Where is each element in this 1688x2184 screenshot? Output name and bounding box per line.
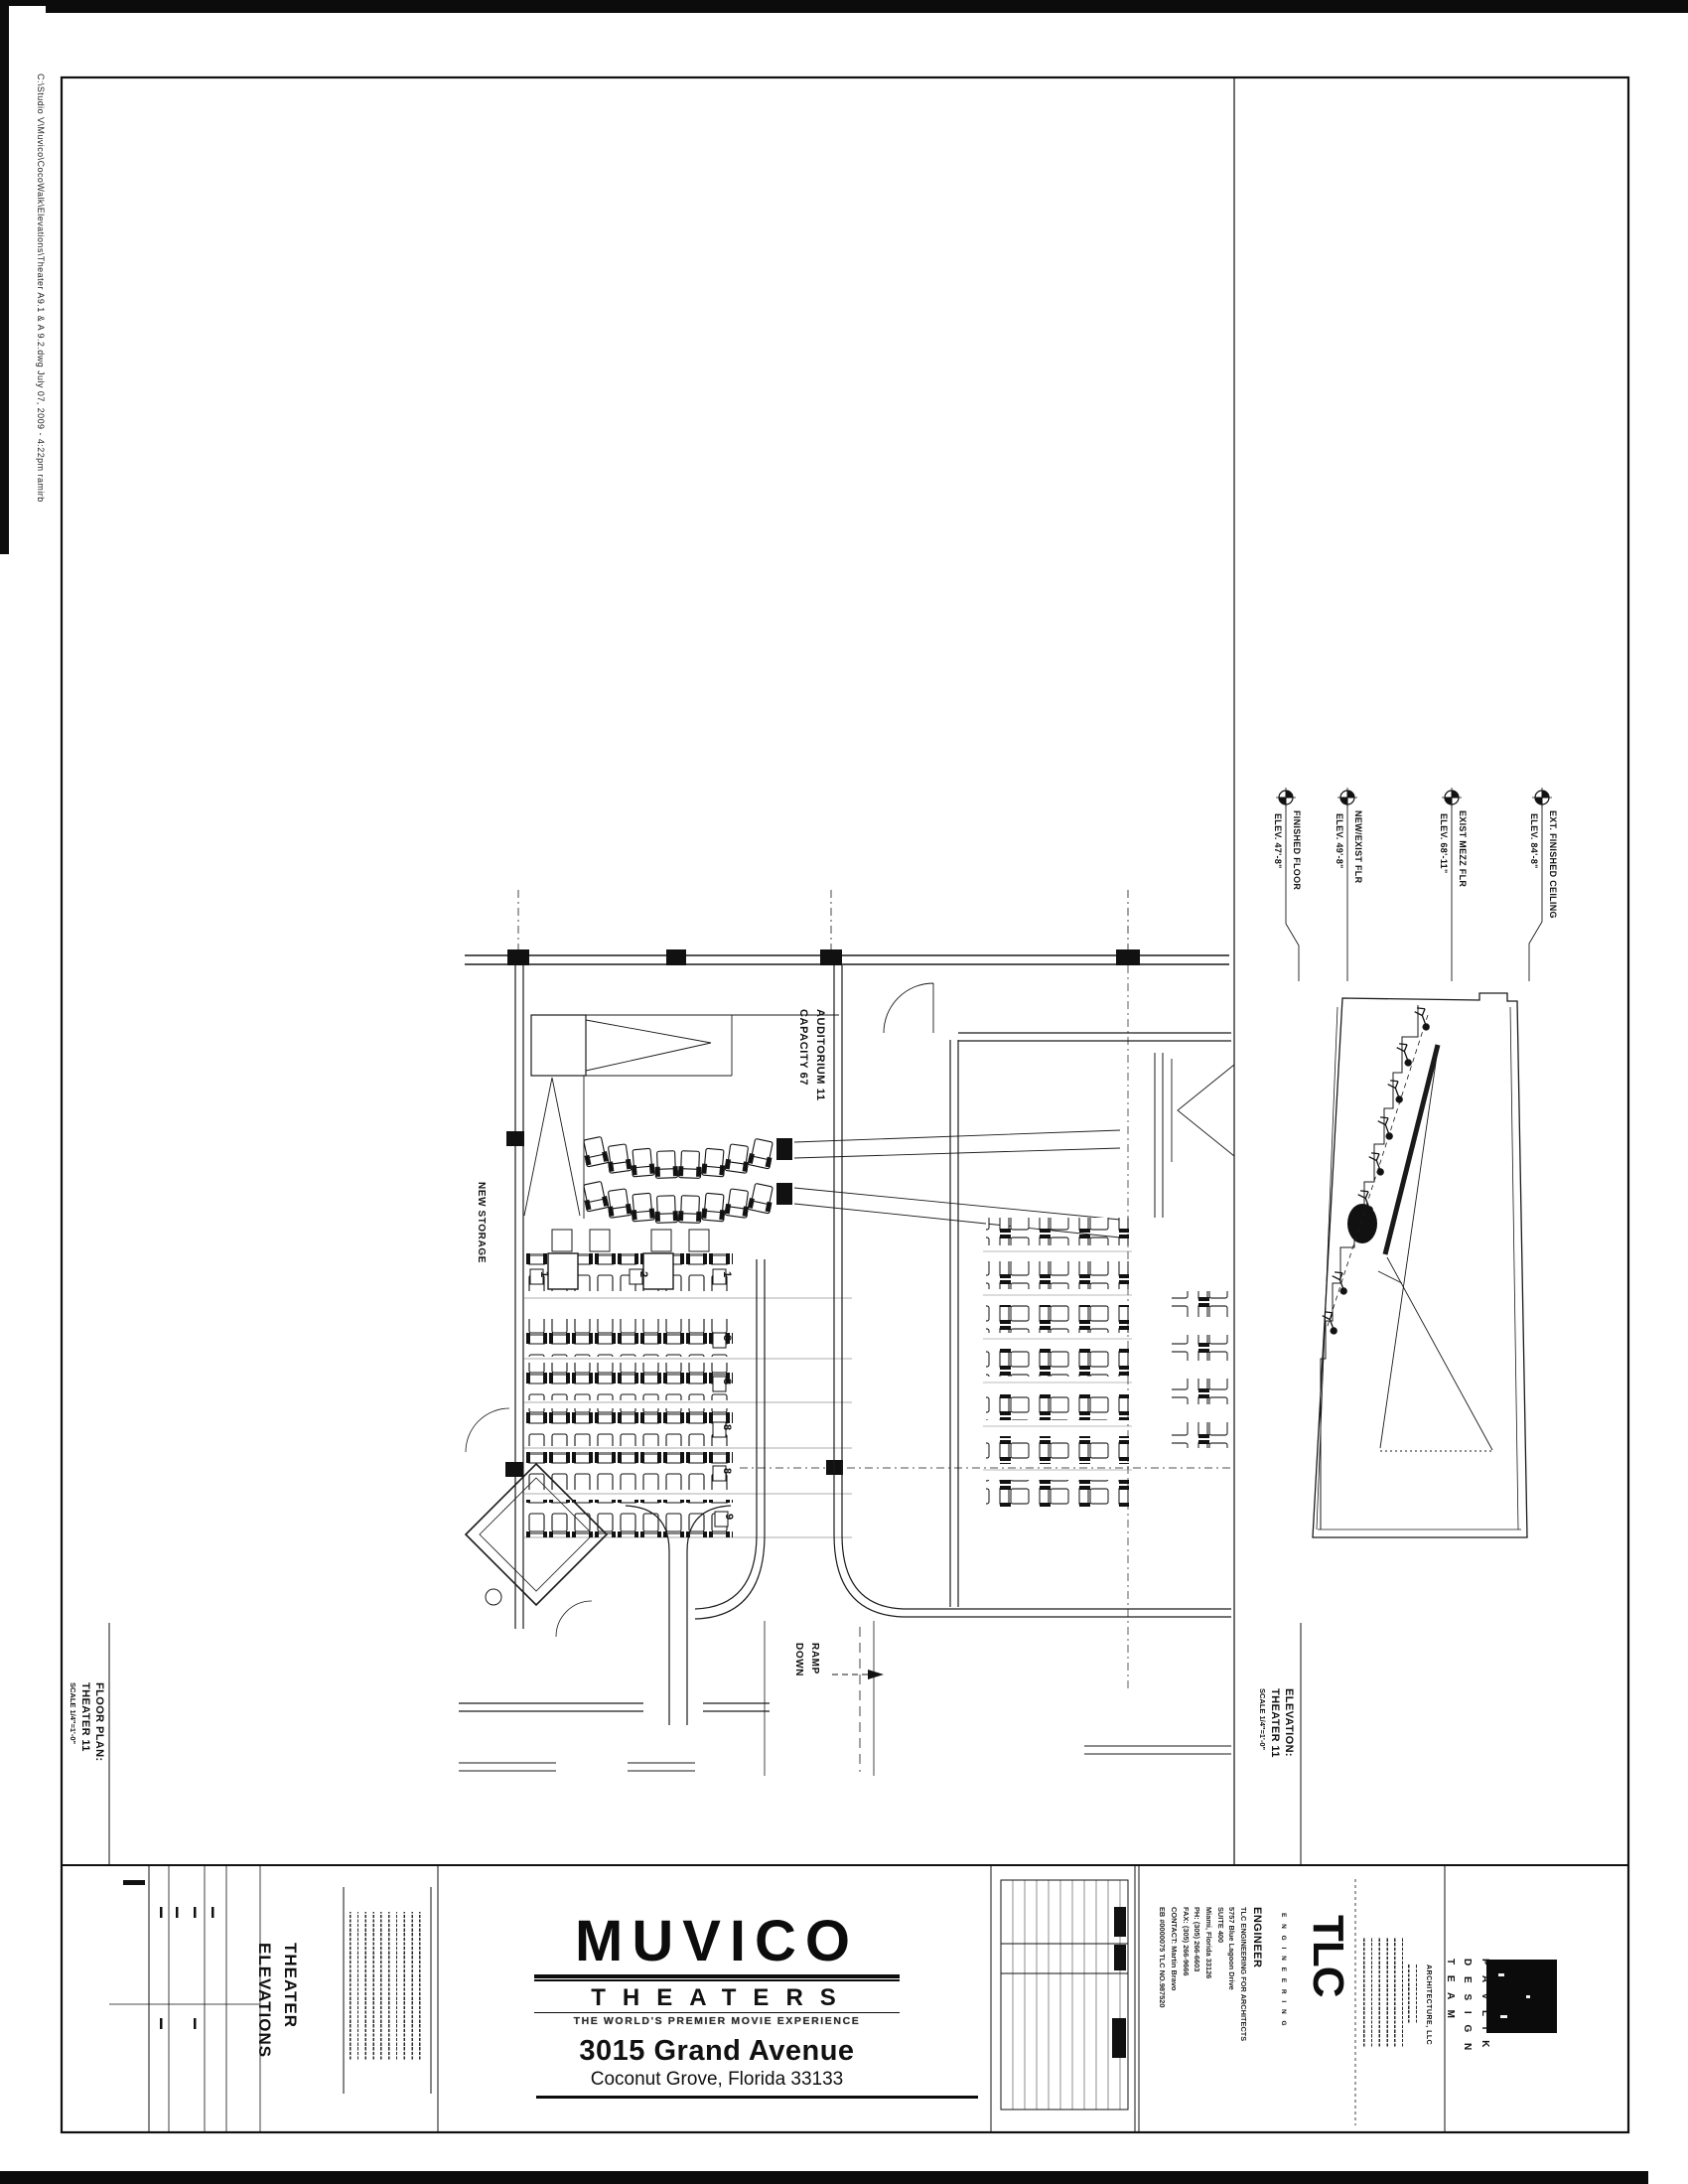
straight-seat-rows bbox=[526, 1253, 733, 1537]
floor-plan: 1 2 1 8 8 8 8 9 bbox=[459, 890, 1234, 1776]
site-address-line2: Coconut Grove, Florida 33133 bbox=[528, 2069, 906, 2091]
site-address-line1: 3015 Grand Avenue bbox=[528, 2035, 906, 2068]
datum-label-new-exist-flr: NEW/EXIST FLR bbox=[1353, 810, 1363, 883]
pavlik-line3: T E A M bbox=[1442, 1959, 1460, 2054]
architect-photo-box bbox=[1486, 1960, 1557, 2033]
scan-edge-artifacts bbox=[0, 0, 1688, 2184]
svg-text:8: 8 bbox=[721, 1335, 733, 1341]
auditorium-name: AUDITORIUM 11 bbox=[811, 1009, 828, 1101]
svg-text:1: 1 bbox=[538, 1271, 550, 1277]
svg-text:8: 8 bbox=[721, 1379, 733, 1384]
label-auditorium-11: AUDITORIUM 11 CAPACITY 67 bbox=[794, 1009, 828, 1101]
curved-seat-rows bbox=[582, 1136, 792, 1223]
floor-plan-title: FLOOR PLAN: THEATER 11 SCALE 1/4"=1'-0" bbox=[69, 1682, 106, 1762]
address-underline bbox=[536, 2096, 978, 2099]
engineer-address2: SUITE 400 bbox=[1214, 1907, 1226, 2041]
elevation-datum-markers bbox=[1276, 788, 1552, 981]
drawing-sheet: 1 2 1 8 8 8 8 9 bbox=[0, 0, 1688, 2184]
elevation-title-scale: SCALE 1/4"=1'-0" bbox=[1258, 1688, 1268, 1758]
floor-plan-title-scale: SCALE 1/4"=1'-0" bbox=[69, 1682, 78, 1762]
brand-tagline: THE WORLD'S PREMIER MOVIE EXPERIENCE bbox=[528, 2015, 906, 2027]
elevation-title-line1: ELEVATION: bbox=[1282, 1688, 1296, 1758]
datum-elev-ext-finished-ceiling: ELEV. 84'-8" bbox=[1529, 813, 1539, 869]
tlc-engineering-caption: E N G I N E E R I N G bbox=[1280, 1913, 1287, 2028]
down-word: DOWN bbox=[791, 1643, 807, 1676]
pavlik-line2: D E S I G N bbox=[1459, 1959, 1477, 2054]
engineer-contact: CONTACT: Martin Bravo bbox=[1168, 1907, 1180, 2041]
sheet-title-line2: ELEVATIONS bbox=[252, 1943, 278, 2058]
svg-text:1: 1 bbox=[721, 1271, 733, 1277]
elevation-section bbox=[1313, 993, 1527, 1537]
auditorium-capacity: CAPACITY 67 bbox=[794, 1009, 811, 1101]
engineer-firm: TLC ENGINEERING FOR ARCHITECTS bbox=[1237, 1907, 1249, 2041]
muvico-logo: MUVICO bbox=[528, 1913, 906, 1970]
svg-text:2: 2 bbox=[637, 1271, 649, 1277]
ramp-word: RAMP bbox=[807, 1643, 823, 1676]
logo-rule bbox=[534, 1974, 900, 1978]
floor-plan-title-line2: THEATER 11 bbox=[77, 1682, 91, 1762]
architect-fineprint bbox=[1363, 1937, 1403, 2048]
elevation-title: ELEVATION: THEATER 11 SCALE 1/4"=1'-0" bbox=[1258, 1688, 1296, 1758]
brand-block: MUVICO THEATERS THE WORLD'S PREMIER MOVI… bbox=[528, 1913, 906, 2091]
engineer-address3: Miami, Florida 33126 bbox=[1202, 1907, 1214, 2041]
engineer-heading: ENGINEER bbox=[1251, 1907, 1263, 2041]
floor-plan-title-line1: FLOOR PLAN: bbox=[92, 1682, 106, 1762]
datum-elev-finished-floor: ELEV. 47'-8" bbox=[1273, 813, 1283, 869]
elevation-title-line2: THEATER 11 bbox=[1267, 1688, 1281, 1758]
general-notes-block bbox=[350, 1912, 425, 2061]
adjacent-auditorium bbox=[884, 983, 1234, 1607]
sheet-title: THEATER ELEVATIONS bbox=[252, 1943, 303, 2058]
engineer-block: ENGINEER TLC ENGINEERING FOR ARCHITECTS … bbox=[1157, 1907, 1264, 2041]
architecture-llc-label: ARCHITECTURE, LLC bbox=[1425, 1965, 1432, 2045]
datum-elev-exist-mezz-flr: ELEV. 68'-11" bbox=[1439, 813, 1449, 874]
datum-label-finished-floor: FINISHED FLOOR bbox=[1292, 810, 1302, 890]
engineer-fax: FAX: (305) 266-9666 bbox=[1180, 1907, 1192, 2041]
svg-text:8: 8 bbox=[721, 1468, 733, 1474]
sheet-drawing-layer: 1 2 1 8 8 8 8 9 bbox=[0, 0, 1688, 2184]
datum-label-ext-finished-ceiling: EXT. FINISHED CEILING bbox=[1548, 810, 1558, 919]
architect-fineprint-2 bbox=[1408, 1965, 1422, 2024]
label-new-storage: NEW STORAGE bbox=[474, 1182, 490, 1263]
logo-rule-2 bbox=[534, 1979, 900, 1981]
wordmark-rule bbox=[534, 2012, 900, 2014]
theaters-wordmark: THEATERS bbox=[528, 1984, 906, 2012]
tlc-logo: TLC bbox=[1303, 1915, 1352, 1997]
engineer-address1: 5757 Blue Lagoon Drive bbox=[1226, 1907, 1238, 2041]
svg-text:9: 9 bbox=[723, 1514, 735, 1520]
sheet-title-line1: THEATER bbox=[278, 1943, 304, 2058]
svg-text:8: 8 bbox=[721, 1424, 733, 1430]
engineer-phone: PH: (305) 266-6603 bbox=[1192, 1907, 1203, 2041]
label-ramp-down: RAMP DOWN bbox=[791, 1643, 822, 1676]
engineer-license: EB #0000075 TLC NO.987520 bbox=[1157, 1907, 1169, 2041]
datum-label-exist-mezz-flr: EXIST MEZZ FLR bbox=[1458, 810, 1468, 887]
datum-elev-new-exist-flr: ELEV. 49'-8" bbox=[1335, 813, 1344, 869]
margin-file-path: C:\Studio V\Muvico\CocoWalk\Elevations\T… bbox=[36, 73, 46, 503]
